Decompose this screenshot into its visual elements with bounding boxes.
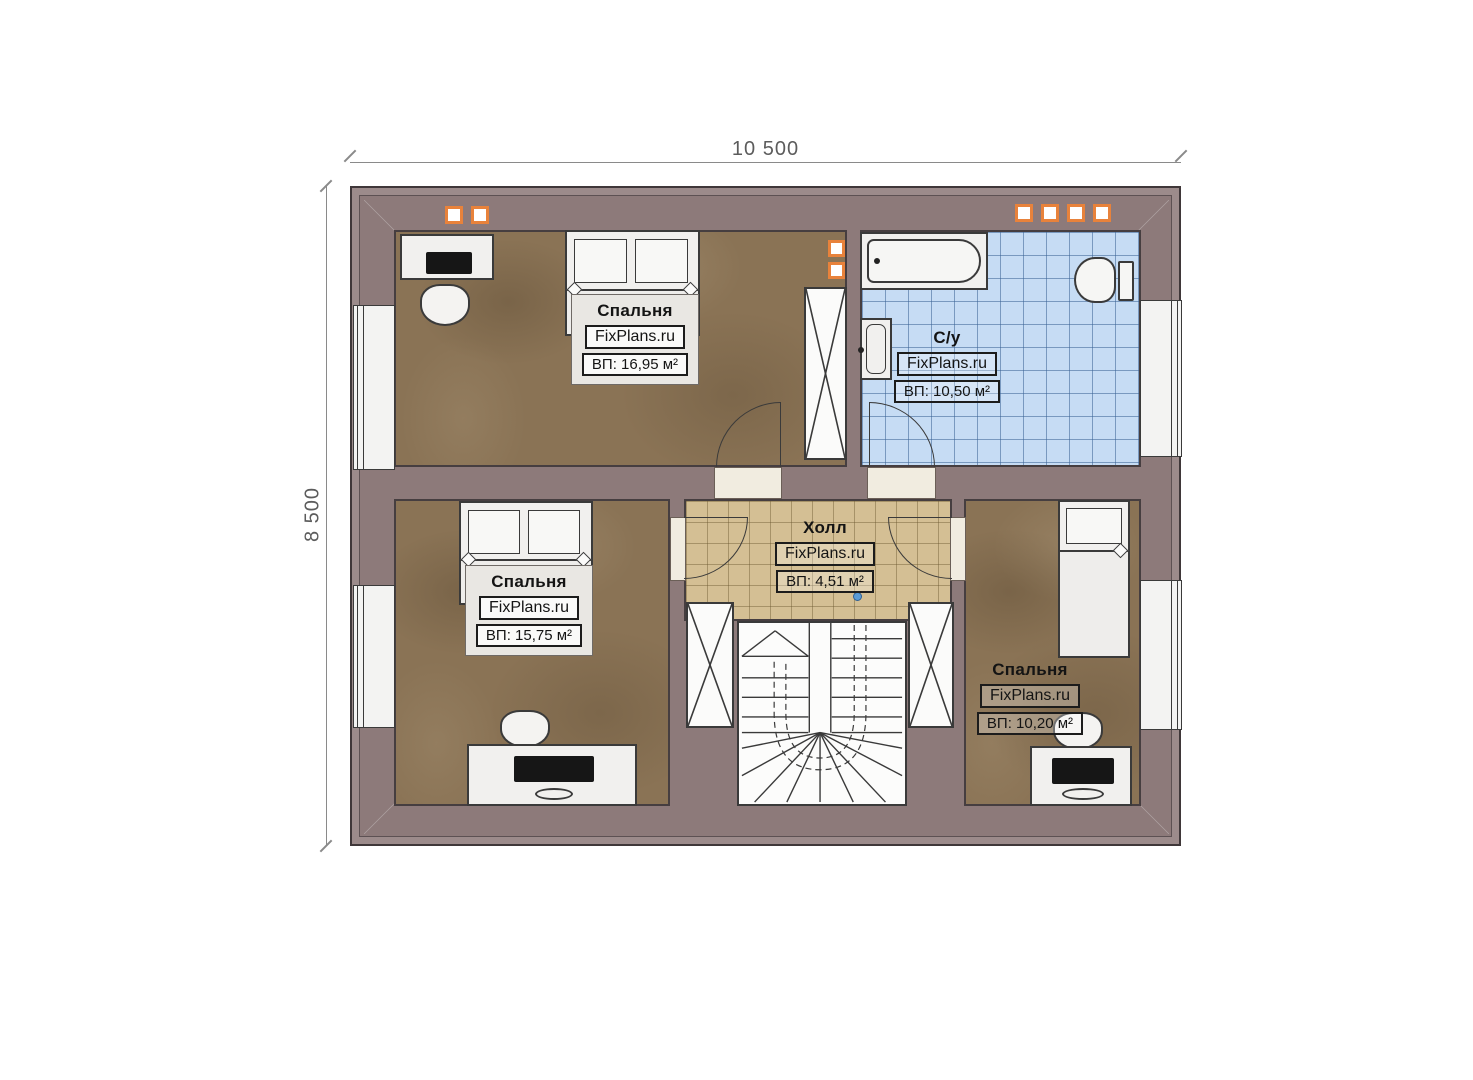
room-name: Спальня bbox=[574, 301, 696, 321]
room-name: Спальня bbox=[968, 660, 1092, 680]
area-value: ВП: 15,75 м² bbox=[476, 624, 582, 647]
vent-block bbox=[471, 206, 489, 224]
vent-block bbox=[1067, 204, 1085, 222]
pillow bbox=[635, 239, 688, 283]
sink-basin bbox=[866, 324, 886, 374]
room-label-bedroom-2: Спальня FixPlans.ru ВП: 15,75 м² bbox=[465, 565, 593, 656]
brand-watermark: FixPlans.ru bbox=[775, 542, 875, 566]
window bbox=[353, 585, 395, 728]
floor-plan: Спальня FixPlans.ru ВП: 16,95 м² С/у Fix… bbox=[350, 186, 1181, 846]
desk bbox=[1030, 746, 1132, 806]
room-label-bedroom-1: Спальня FixPlans.ru ВП: 16,95 м² bbox=[571, 294, 699, 385]
brand-watermark: FixPlans.ru bbox=[980, 684, 1080, 708]
vent-block bbox=[828, 262, 845, 279]
chair bbox=[420, 284, 470, 326]
wardrobe bbox=[908, 602, 954, 728]
pillow bbox=[1066, 508, 1122, 544]
room-name: С/у bbox=[885, 328, 1009, 348]
area-value: ВП: 4,51 м² bbox=[776, 570, 874, 593]
desk-equipment bbox=[1062, 788, 1104, 800]
desk bbox=[467, 744, 637, 806]
room-label-hall: Холл FixPlans.ru ВП: 4,51 м² bbox=[766, 518, 884, 593]
desk-equipment bbox=[514, 756, 594, 782]
window bbox=[1140, 580, 1182, 730]
pillow bbox=[468, 510, 520, 554]
dimension-line bbox=[326, 186, 327, 846]
walk-start-dot bbox=[853, 592, 862, 601]
wardrobe bbox=[804, 287, 847, 460]
window-glazing bbox=[357, 586, 364, 727]
pillow bbox=[574, 239, 627, 283]
bed-single bbox=[1058, 500, 1130, 658]
door-opening bbox=[867, 467, 936, 499]
bathtub-basin bbox=[867, 239, 981, 283]
area-value: ВП: 10,50 м² bbox=[894, 380, 1000, 403]
room-label-bathroom: С/у FixPlans.ru ВП: 10,50 м² bbox=[885, 328, 1009, 403]
faucet bbox=[874, 258, 880, 264]
blanket-fold bbox=[1113, 543, 1129, 559]
vent-block bbox=[1015, 204, 1033, 222]
door-opening bbox=[714, 467, 782, 499]
floor-plan-sheet: 10 500 8 500 bbox=[0, 0, 1473, 1080]
room-name: Спальня bbox=[468, 572, 590, 592]
room-label-bedroom-3: Спальня FixPlans.ru ВП: 10,20 м² bbox=[968, 660, 1092, 735]
brand-watermark: FixPlans.ru bbox=[897, 352, 997, 376]
window-glazing bbox=[1171, 301, 1178, 456]
vent-block bbox=[828, 240, 845, 257]
door-opening bbox=[950, 517, 966, 581]
desk bbox=[400, 234, 494, 280]
vent-block bbox=[445, 206, 463, 224]
desk-equipment bbox=[426, 252, 472, 274]
blanket bbox=[1058, 550, 1130, 658]
chair bbox=[500, 710, 550, 748]
dimension-left: 8 500 bbox=[300, 186, 330, 846]
vent-block bbox=[1093, 204, 1111, 222]
toilet bbox=[1074, 257, 1134, 305]
faucet bbox=[858, 347, 864, 353]
pillow bbox=[528, 510, 580, 554]
desk-equipment bbox=[1052, 758, 1114, 784]
toilet-bowl bbox=[1074, 257, 1116, 303]
window-glazing bbox=[357, 306, 364, 469]
toilet-tank bbox=[1118, 261, 1134, 301]
window bbox=[1140, 300, 1182, 457]
bathtub bbox=[860, 232, 988, 290]
desk-equipment bbox=[535, 788, 573, 800]
area-value: ВП: 10,20 м² bbox=[977, 712, 1083, 735]
brand-watermark: FixPlans.ru bbox=[479, 596, 579, 620]
window bbox=[353, 305, 395, 470]
dimension-line bbox=[350, 162, 1181, 163]
wardrobe bbox=[686, 602, 734, 728]
vent-block bbox=[1041, 204, 1059, 222]
dimension-top-value: 10 500 bbox=[350, 138, 1181, 161]
brand-watermark: FixPlans.ru bbox=[585, 325, 685, 349]
stairs bbox=[737, 621, 907, 806]
dimension-left-value: 8 500 bbox=[302, 480, 325, 550]
window-glazing bbox=[1171, 581, 1178, 729]
room-name: Холл bbox=[766, 518, 884, 538]
dimension-top: 10 500 bbox=[350, 140, 1181, 166]
area-value: ВП: 16,95 м² bbox=[582, 353, 688, 376]
